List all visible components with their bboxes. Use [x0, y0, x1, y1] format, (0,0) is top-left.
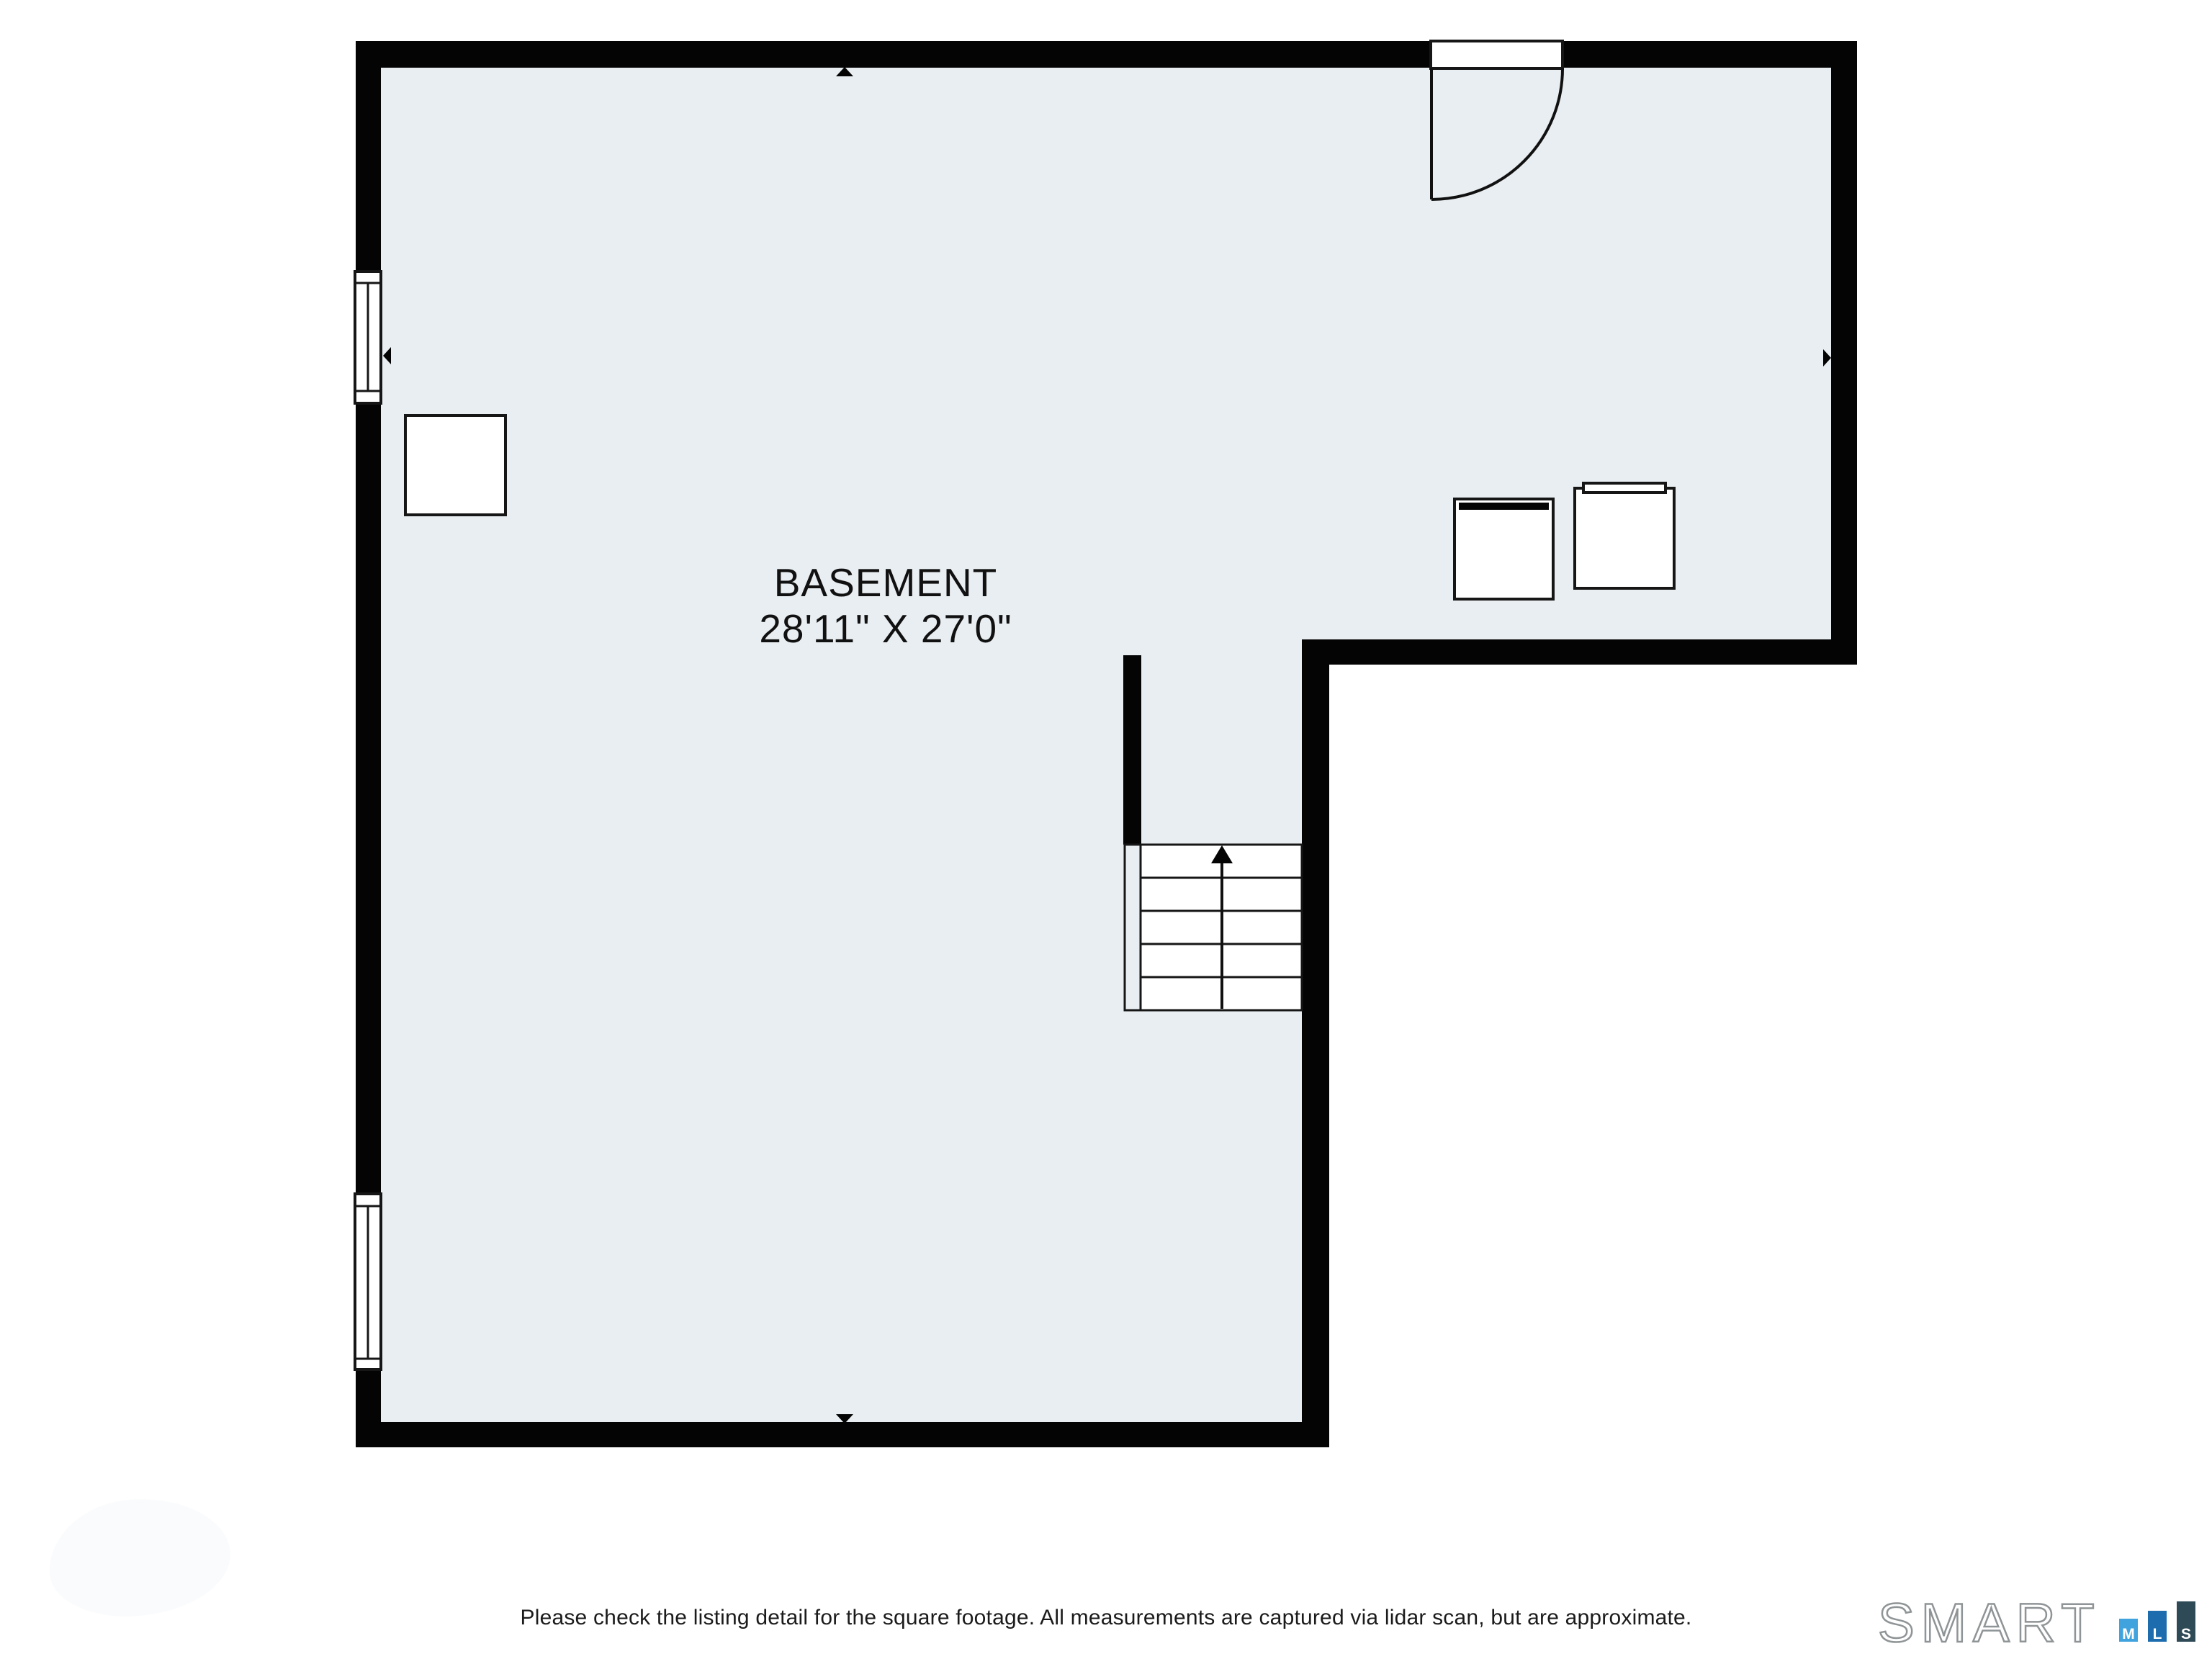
logo-bar-letter: S: [2181, 1626, 2191, 1642]
washer-body: [1455, 499, 1553, 599]
dryer-panel-strip: [1583, 483, 1665, 493]
floorplan-page: BASEMENT 28'11" X 27'0" Please check the…: [0, 0, 2212, 1659]
staircase: [1125, 845, 1302, 1010]
furnace-fixture: [405, 415, 505, 515]
room-floor: [381, 68, 1831, 1422]
window-lower-left: [355, 1194, 381, 1370]
interior-stair-wall: [1123, 655, 1141, 845]
dryer-fixture: [1575, 483, 1674, 588]
washer-fixture: [1455, 499, 1553, 599]
basement-floorplan: BASEMENT 28'11" X 27'0": [0, 0, 2212, 1659]
washer-panel-bar: [1459, 503, 1549, 510]
smartmls-logo: SMART M L S: [1878, 1591, 2202, 1652]
logo-bar-m: M: [2119, 1619, 2138, 1642]
logo-bar-s: S: [2177, 1601, 2195, 1642]
logo-bar-letter: L: [2153, 1626, 2162, 1642]
door-opening: [1431, 41, 1563, 68]
logo-bar-l: L: [2148, 1611, 2167, 1642]
logo-wordmark: SMART: [1878, 1593, 2101, 1652]
dryer-body: [1575, 488, 1674, 588]
room-label: BASEMENT: [774, 560, 998, 605]
window-upper-left: [355, 271, 381, 403]
logo-bar-letter: M: [2122, 1626, 2135, 1642]
room-dimensions: 28'11" X 27'0": [759, 606, 1012, 651]
